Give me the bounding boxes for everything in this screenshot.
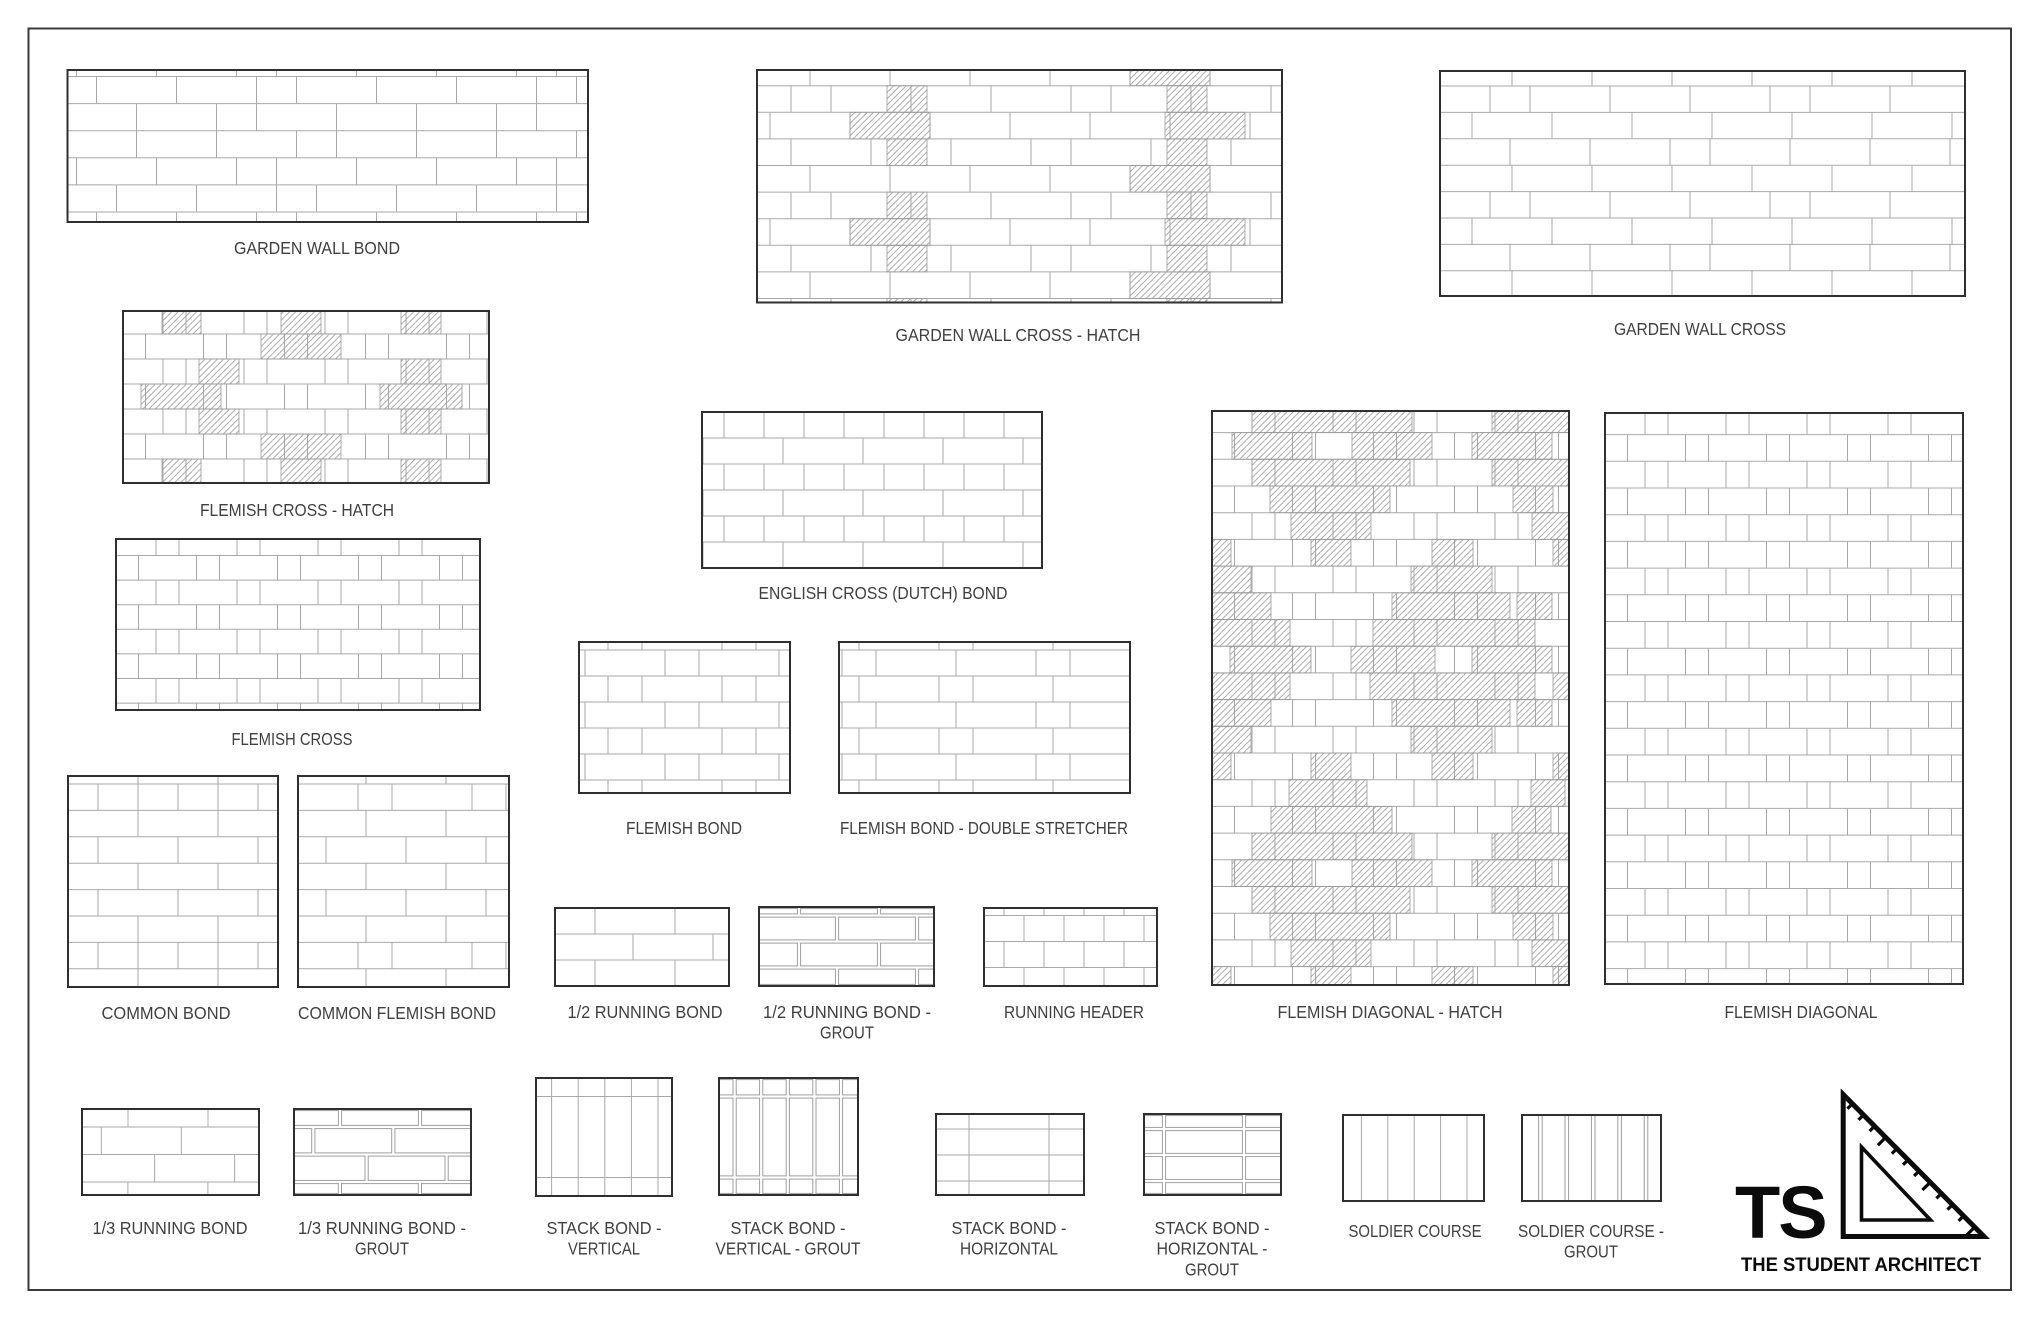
svg-text:FLEMISH BOND: FLEMISH BOND: [626, 818, 742, 838]
svg-text:HORIZONTAL: HORIZONTAL: [960, 1239, 1058, 1259]
svg-text:SOLDIER COURSE -: SOLDIER COURSE -: [1518, 1221, 1664, 1241]
svg-text:1/2 RUNNING BOND -: 1/2 RUNNING BOND -: [763, 1002, 931, 1022]
svg-text:ENGLISH CROSS (DUTCH) BOND: ENGLISH CROSS (DUTCH) BOND: [759, 583, 1008, 603]
svg-text:STACK BOND -: STACK BOND -: [731, 1218, 846, 1238]
svg-text:COMMON BOND: COMMON BOND: [102, 1003, 231, 1023]
svg-text:GARDEN WALL CROSS: GARDEN WALL CROSS: [1614, 319, 1786, 339]
svg-text:SOLDIER COURSE: SOLDIER COURSE: [1349, 1221, 1482, 1241]
svg-text:FLEMISH CROSS: FLEMISH CROSS: [232, 729, 353, 749]
svg-text:FLEMISH DIAGONAL - HATCH: FLEMISH DIAGONAL - HATCH: [1278, 1002, 1503, 1022]
svg-text:GROUT: GROUT: [1564, 1242, 1618, 1262]
svg-text:FLEMISH CROSS - HATCH: FLEMISH CROSS - HATCH: [200, 500, 394, 520]
svg-text:1/3 RUNNING BOND: 1/3 RUNNING BOND: [93, 1218, 248, 1238]
svg-text:GROUT: GROUT: [820, 1023, 874, 1043]
svg-text:1/2 RUNNING BOND: 1/2 RUNNING BOND: [568, 1002, 723, 1022]
svg-text:TS: TS: [1735, 1171, 1826, 1254]
svg-text:VERTICAL: VERTICAL: [568, 1239, 640, 1259]
svg-text:COMMON FLEMISH BOND: COMMON FLEMISH BOND: [298, 1003, 496, 1023]
svg-text:HORIZONTAL -: HORIZONTAL -: [1157, 1239, 1268, 1259]
svg-text:1/3 RUNNING BOND -: 1/3 RUNNING BOND -: [298, 1218, 466, 1238]
svg-text:GROUT: GROUT: [1185, 1259, 1239, 1279]
svg-text:STACK BOND -: STACK BOND -: [952, 1218, 1067, 1238]
svg-text:GARDEN WALL BOND: GARDEN WALL BOND: [234, 238, 400, 258]
svg-text:GROUT: GROUT: [355, 1239, 409, 1259]
svg-text:THE STUDENT ARCHITECT: THE STUDENT ARCHITECT: [1741, 1255, 1981, 1276]
svg-text:STACK BOND -: STACK BOND -: [1155, 1218, 1270, 1238]
svg-text:VERTICAL - GROUT: VERTICAL - GROUT: [716, 1239, 861, 1259]
svg-text:FLEMISH DIAGONAL: FLEMISH DIAGONAL: [1725, 1002, 1878, 1022]
svg-text:STACK BOND -: STACK BOND -: [547, 1218, 662, 1238]
svg-text:GARDEN WALL CROSS - HATCH: GARDEN WALL CROSS - HATCH: [896, 325, 1141, 345]
svg-text:RUNNING HEADER: RUNNING HEADER: [1004, 1002, 1144, 1022]
svg-text:FLEMISH BOND - DOUBLE STRETCHE: FLEMISH BOND - DOUBLE STRETCHER: [840, 818, 1128, 838]
